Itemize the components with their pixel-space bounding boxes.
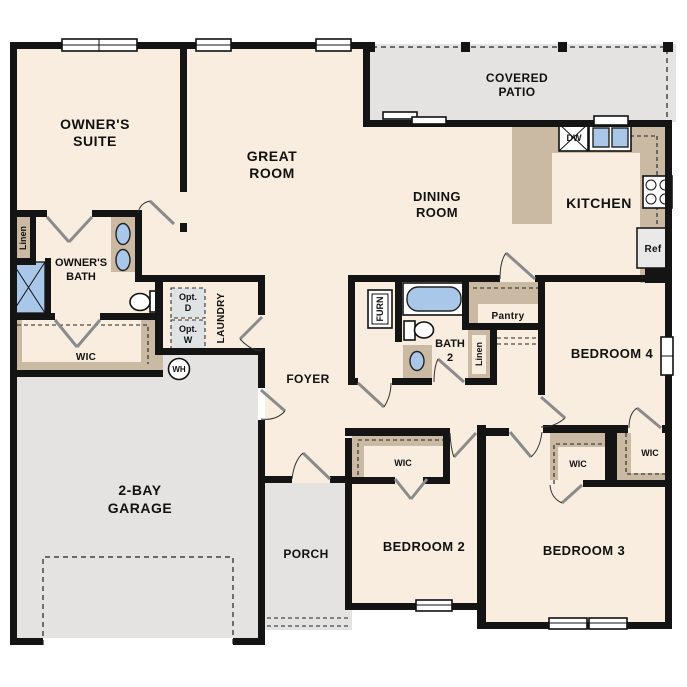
pantry-label: Pantry xyxy=(492,311,525,322)
bedroom2-label: BEDROOM 2 xyxy=(383,539,465,554)
bedroom3-label: BEDROOM 3 xyxy=(543,543,625,558)
linen-owner-label: Linen xyxy=(18,226,28,250)
patio-post xyxy=(461,42,470,52)
dining-room-label: DINING xyxy=(413,189,461,204)
vanity-sink xyxy=(116,250,130,271)
floor-plan-svg: OWNER'S SUITE GREAT ROOM COVERED PATIO D… xyxy=(0,0,687,687)
linen-hall-label: Linen xyxy=(474,342,484,366)
bedroom4-label: BEDROOM 4 xyxy=(571,346,654,361)
wic-bed2-label: WIC xyxy=(394,458,412,468)
wic-bed3-label: WIC xyxy=(569,459,587,469)
wic-owner-label: WIC xyxy=(76,352,96,363)
vanity-sink xyxy=(116,224,130,245)
kitchen-sink-basin xyxy=(612,128,628,147)
window-kitchen xyxy=(594,116,628,125)
patio-post xyxy=(663,42,673,52)
owners-bath-label: OWNER'S xyxy=(55,257,107,269)
bath2-label: 2 xyxy=(447,352,453,364)
refrigerator-label: Ref xyxy=(644,244,661,255)
patio-post xyxy=(558,42,567,52)
kitchen-peninsula-counter xyxy=(512,122,552,224)
kitchen-label: KITCHEN xyxy=(566,195,632,211)
laundry-label: LAUNDRY xyxy=(216,293,227,344)
garage-label: GARAGE xyxy=(108,500,172,516)
water-heater-label: WH xyxy=(172,365,186,374)
dishwasher-label: DW xyxy=(567,133,582,143)
great-room-label: GREAT xyxy=(247,148,297,164)
great-room-label: ROOM xyxy=(249,165,295,181)
garage-label: 2-BAY xyxy=(118,482,161,498)
bathtub xyxy=(407,287,461,311)
opt-washer-label: Opt. xyxy=(179,324,197,334)
bath2-label: BATH xyxy=(435,338,465,350)
foyer-label: FOYER xyxy=(286,372,329,386)
floor-plan-page: OWNER'S SUITE GREAT ROOM COVERED PATIO D… xyxy=(0,0,687,687)
covered-patio-label: COVERED xyxy=(486,71,548,85)
furnace-label: FURN xyxy=(375,297,385,322)
opt-dryer-label: D xyxy=(185,303,192,313)
kitchen-sink-basin xyxy=(593,128,609,147)
bath2-sink xyxy=(410,352,424,371)
opt-dryer-label: Opt. xyxy=(179,292,197,302)
porch-label: PORCH xyxy=(283,547,328,561)
owners-suite-label: SUITE xyxy=(73,133,117,149)
owners-bath-label: BATH xyxy=(66,271,96,283)
opt-washer-label: W xyxy=(184,335,193,345)
owners-suite-label: OWNER'S xyxy=(60,116,130,132)
patio-slider-panel xyxy=(412,117,446,124)
toilet-bowl xyxy=(415,322,434,338)
wic-bed4-label: WIC xyxy=(641,448,659,458)
toilet-tank xyxy=(404,321,415,340)
dining-room-label: ROOM xyxy=(416,205,458,220)
toilet-bowl xyxy=(130,294,150,311)
covered-patio-label: PATIO xyxy=(499,85,536,99)
